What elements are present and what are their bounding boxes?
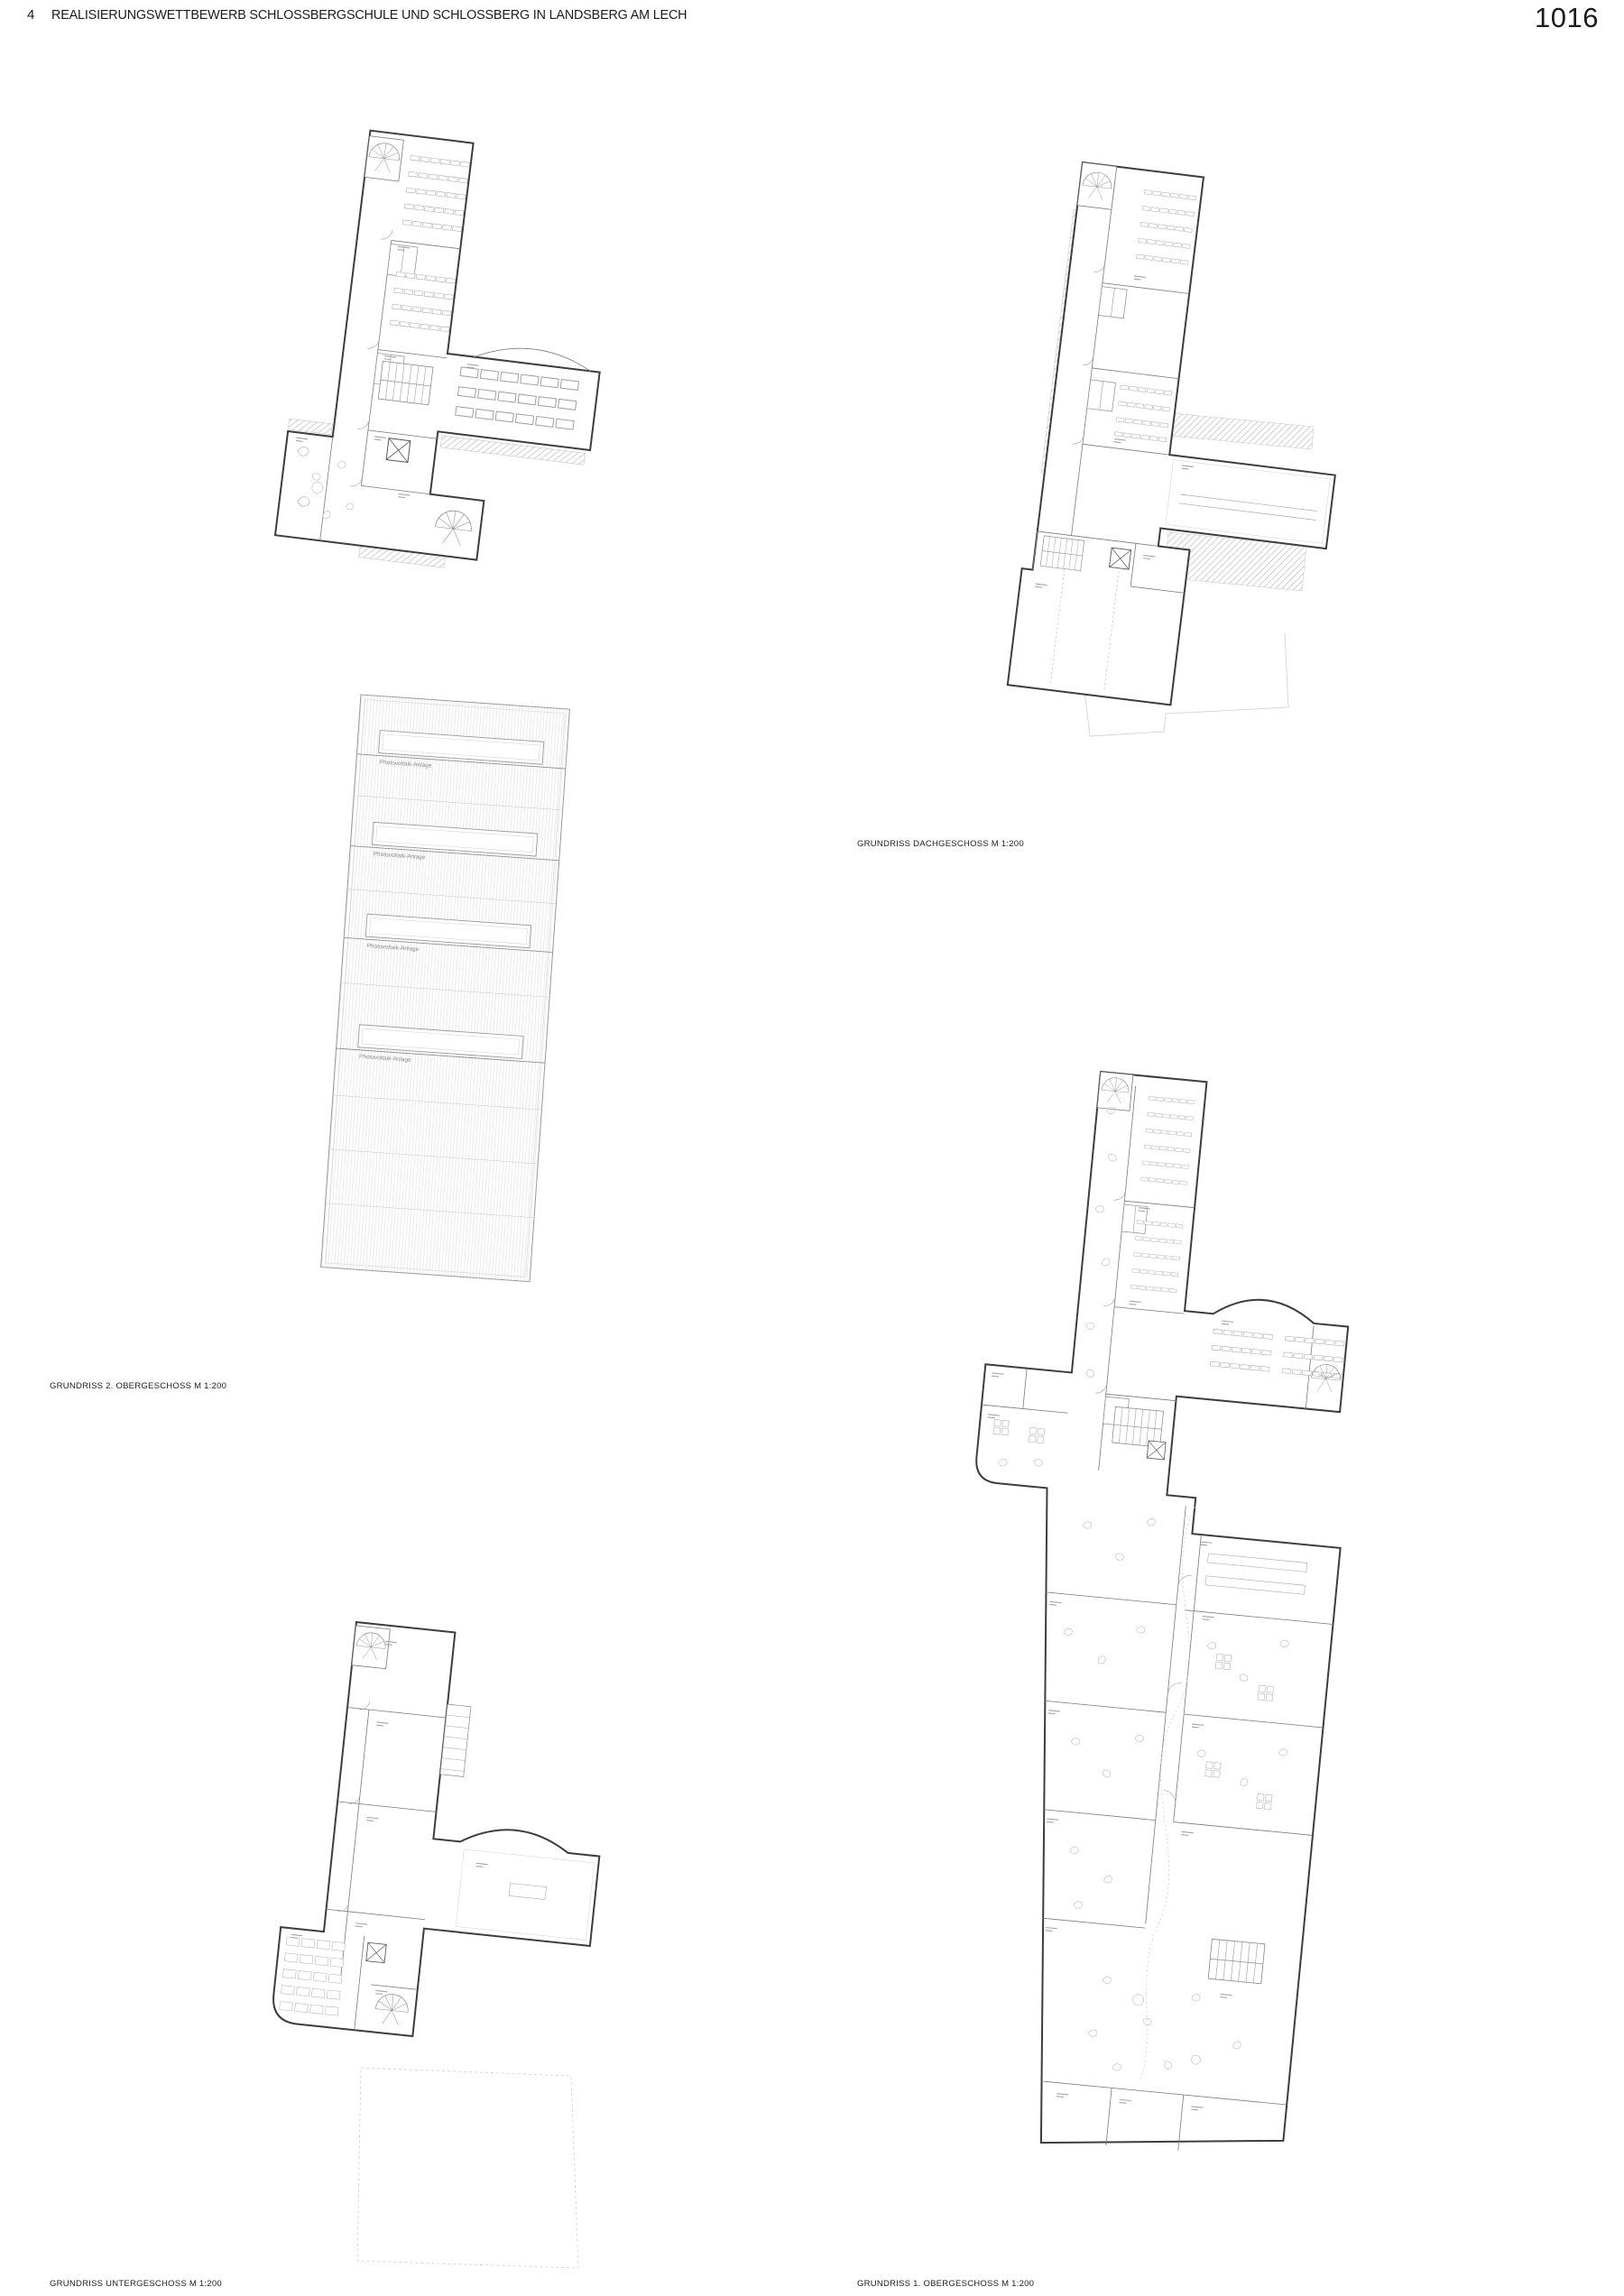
plans-canvas: Photovoltaik-Anlage Photovoltaik-Anlage … <box>0 0 1624 2296</box>
site-outline <box>357 2068 578 2268</box>
elevator-icon <box>1147 1441 1166 1460</box>
exterior-walls <box>271 1618 621 2053</box>
elevator-icon <box>366 1942 386 1962</box>
elevator-icon <box>1110 548 1131 569</box>
stair-icon <box>1040 536 1084 571</box>
plan-dg-drawing <box>1008 161 1370 722</box>
stair-icon <box>378 361 433 405</box>
plan-ug-drawing <box>271 1618 621 2053</box>
exterior-walls <box>275 125 625 572</box>
plan-1og-drawing <box>912 1064 1384 2166</box>
roof-plan-drawing: Photovoltaik-Anlage Photovoltaik-Anlage … <box>321 695 570 1282</box>
plan-2og-drawing <box>273 125 625 584</box>
elevator-icon <box>386 438 411 463</box>
exterior-walls <box>912 1064 1384 2166</box>
stair-icon <box>1208 1939 1265 1984</box>
